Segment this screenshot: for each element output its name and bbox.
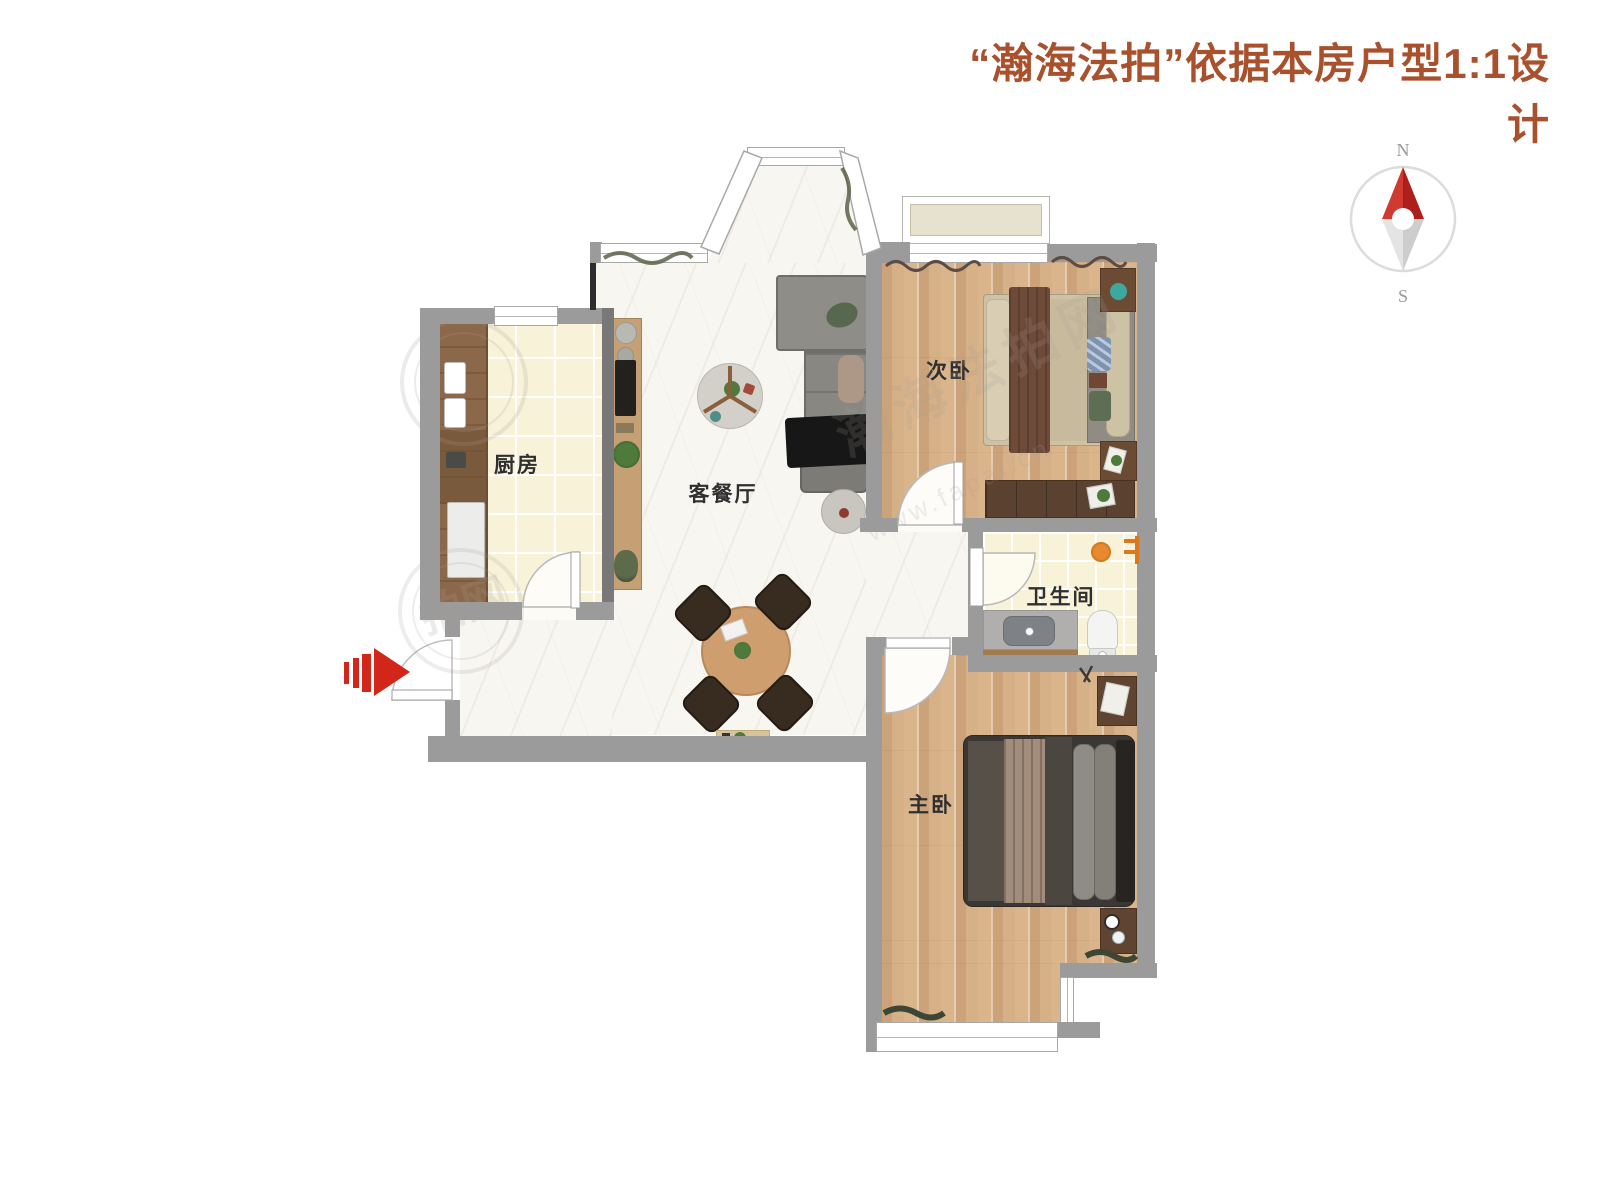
master-bed-pillows	[1073, 744, 1095, 900]
entrance-arrow-icon	[344, 648, 410, 696]
arrow-dash	[353, 658, 359, 688]
secondary-bed-brown-box	[1089, 373, 1107, 388]
kitchen-sink-2	[444, 398, 466, 428]
wall	[866, 243, 882, 520]
nightstand-cup	[1106, 916, 1118, 928]
compass-hub	[1392, 208, 1414, 230]
master-bed-runner	[1004, 739, 1046, 903]
decor-plate	[615, 322, 637, 344]
side-table-decor	[839, 508, 849, 518]
arrow-dash	[344, 662, 349, 684]
room-label-kitchen: 厨房	[467, 449, 567, 479]
bay-window-left	[600, 243, 708, 263]
master-bed-blanket-right	[1045, 737, 1072, 905]
nightstand-cup	[1113, 932, 1124, 943]
ac-platform-inner	[910, 204, 1042, 236]
compass-ring	[1351, 167, 1455, 271]
secondary-bed-green-pillow	[1089, 391, 1111, 421]
entrance-door-opening	[445, 637, 460, 700]
room-label-bathroom: 卫生间	[1001, 581, 1121, 611]
master-bedroom-floor-lower	[880, 963, 1060, 1022]
arrow-head	[374, 648, 410, 696]
wall	[866, 637, 882, 1052]
floor-drain	[1091, 542, 1111, 562]
master-side-window	[1060, 977, 1074, 1023]
secondary-bedroom-window	[904, 242, 1048, 263]
secondary-bed-blanket	[1009, 287, 1050, 453]
master-bed-blanket-left	[968, 741, 1005, 901]
nightstand	[1100, 908, 1137, 954]
room-label-master-bedroom: 主卧	[881, 789, 981, 819]
compass-needle-north-shade	[1403, 167, 1424, 219]
secondary-bed-blue-pillow	[1087, 337, 1111, 371]
wall	[420, 308, 440, 618]
sofa-black-throw	[785, 414, 872, 468]
coffee-table-plant	[724, 381, 740, 397]
floorplan-page: 厨房 客餐厅 次卧 卫生间 主卧 “瀚海法拍”依据本房户型1:1设计 N S 拍…	[0, 0, 1600, 1200]
coffee-table-decor-teal	[710, 411, 721, 422]
entry-floor	[458, 618, 612, 736]
page-title: “瀚海法拍”依据本房户型1:1设计	[940, 30, 1550, 152]
dining-table-plant	[734, 642, 751, 659]
wall	[428, 736, 872, 762]
wall	[602, 308, 614, 620]
wall	[1056, 1022, 1100, 1038]
secondary-bed-duvet	[1050, 299, 1087, 441]
master-door-opening	[886, 637, 952, 655]
master-bed-pillows	[1094, 744, 1116, 900]
dresser-plant	[1097, 489, 1110, 502]
kitchen-window	[494, 306, 558, 326]
master-bed-headboard	[1116, 740, 1135, 902]
compass-needle-south	[1382, 219, 1403, 271]
room-label-secondary-bedroom: 次卧	[899, 355, 999, 385]
wall	[1137, 243, 1155, 963]
compass-needle-south-shade	[1403, 219, 1424, 271]
wall	[1060, 963, 1157, 978]
hallway-floor	[866, 530, 968, 637]
nightstand-plant	[1111, 455, 1122, 466]
master-bottom-window	[876, 1022, 1058, 1052]
kitchen-sink	[444, 362, 466, 394]
fridge	[447, 502, 485, 578]
potted-plant-2	[614, 550, 638, 582]
kitchen-door-opening	[522, 602, 576, 620]
bathroom-faucet	[1026, 628, 1033, 635]
bay-window-top	[747, 147, 845, 166]
toilet	[1087, 610, 1118, 650]
nightstand-plant	[1110, 283, 1127, 300]
arrow-dash	[362, 654, 371, 692]
tv	[615, 360, 636, 416]
compass-needle-north	[1382, 167, 1403, 219]
wall	[968, 655, 1157, 672]
books	[616, 423, 634, 433]
sofa-tan-pillow	[838, 355, 864, 403]
bay-window-floor	[707, 166, 877, 263]
potted-plant	[613, 441, 640, 468]
wall	[968, 532, 983, 657]
compass-south-label: S	[1398, 286, 1408, 306]
kitchen-hob	[446, 452, 466, 468]
compass-icon: N S	[1338, 126, 1468, 311]
wall	[868, 242, 910, 263]
secondary-bedroom-door-opening	[898, 518, 962, 532]
room-label-living-dining: 客餐厅	[663, 478, 783, 508]
